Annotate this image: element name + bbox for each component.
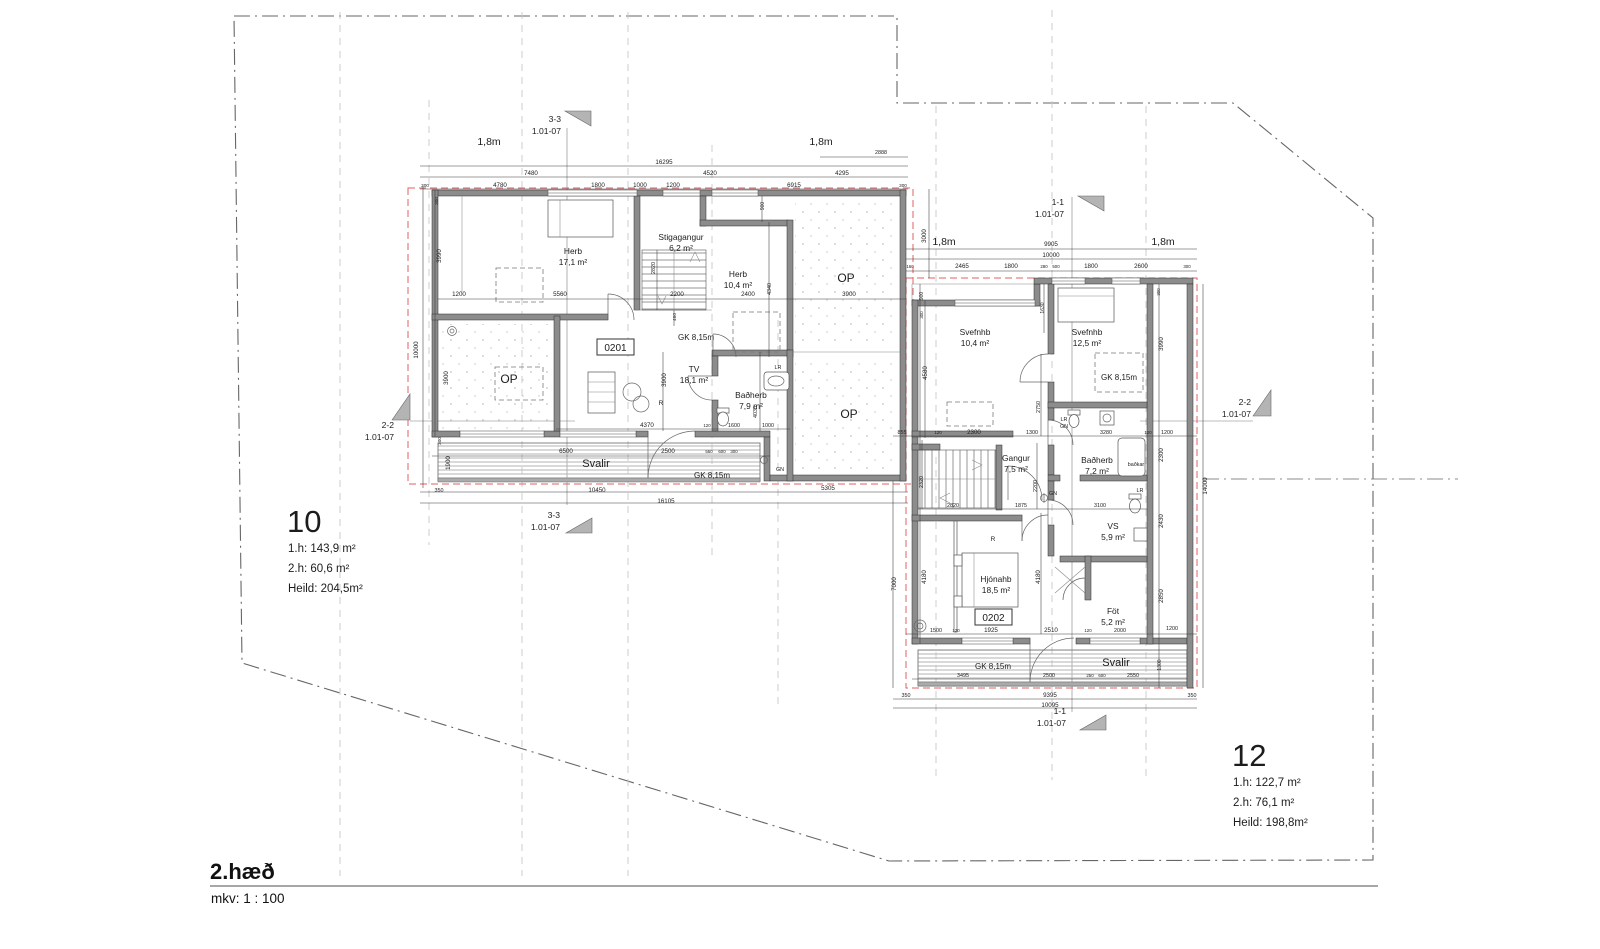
dim-label: 2430	[1158, 514, 1165, 528]
room-name-label: TV	[689, 364, 700, 374]
room-area-label: 6,2 m²	[669, 243, 693, 253]
dim-label: 350	[435, 488, 444, 494]
dim-label: 3000	[921, 229, 928, 243]
dim-label: 1300	[1026, 430, 1038, 436]
unit-area-line: 1.h: 143,9 m²	[288, 543, 356, 555]
dim-label: 2888	[875, 150, 887, 156]
annotation-label: LR	[1137, 488, 1144, 494]
room-area-label: 7,5 m²	[1004, 464, 1028, 474]
annotation-label: Svalir	[1102, 657, 1130, 669]
dim-label: 5560	[553, 291, 567, 298]
op-area	[440, 324, 552, 429]
dim-label: 300	[730, 449, 738, 454]
dim-label: 300	[1156, 288, 1161, 296]
annotation-label: GN	[1049, 491, 1057, 497]
room-area-label: 10,4 m²	[724, 280, 753, 290]
section-marker-ref: 1.01-07	[531, 522, 560, 532]
dim-label: 14000	[1202, 477, 1209, 495]
toilet-icon	[1130, 499, 1141, 513]
dim-label: 2500	[1043, 673, 1055, 679]
annotation-label: GK 8,15m	[694, 471, 730, 480]
dim-label: 350	[902, 693, 911, 699]
dim-label: 16295	[655, 159, 673, 166]
room-area-label: 18,5 m²	[982, 585, 1011, 595]
annotation-label: Svalir	[582, 458, 610, 470]
annotation-label: GN	[776, 467, 784, 473]
dim-label: 7480	[524, 170, 538, 177]
dim-label: 1600	[728, 423, 740, 429]
dim-label: 3900	[443, 371, 450, 385]
room-name-label: Baðherb	[735, 390, 767, 400]
dim-label: 5305	[821, 485, 835, 492]
dim-label: 300	[919, 311, 924, 319]
section-marker-label: 1-1	[1052, 197, 1065, 207]
room-name-label: Herb	[729, 269, 747, 279]
section-flag-icon	[1078, 196, 1104, 211]
section-marker-ref: 1.01-07	[1037, 718, 1066, 728]
room-area-label: 5,2 m²	[1101, 617, 1125, 627]
dim-label: 2750	[1036, 401, 1042, 413]
dim-label: 1875	[1015, 503, 1027, 509]
dim-label: 300	[421, 183, 429, 188]
dim-label: 10000	[413, 341, 420, 359]
dim-label: 460	[672, 313, 678, 321]
section-flag-icon	[1080, 715, 1106, 730]
room-area-label: 17,1 m²	[559, 257, 588, 267]
toilet-icon	[1129, 494, 1141, 499]
annotation-label: R	[991, 536, 996, 543]
annotation-label: GK 8,15m	[975, 662, 1011, 671]
section-flag-icon	[566, 518, 592, 533]
room-name-label: Föt	[1107, 606, 1120, 616]
toilet-icon	[718, 412, 729, 426]
balcony-svalir-12	[918, 650, 1187, 686]
dim-label: 2400	[741, 291, 755, 298]
room-name-label: Svefnhb	[1072, 327, 1103, 337]
room-area-label: 12,5 m²	[1073, 338, 1102, 348]
dim-label: 4580	[922, 366, 929, 380]
dim-label: 10000	[1042, 252, 1060, 259]
section-flag-icon	[1253, 390, 1271, 416]
dim-label: 280	[1040, 264, 1048, 269]
dim-label: 2510	[1044, 627, 1058, 634]
room-name-label: Svefnhb	[960, 327, 991, 337]
stair-unit-12	[918, 450, 996, 508]
annotation-label: LR	[775, 365, 782, 371]
dim-label: 16105	[657, 498, 675, 505]
room-name-label: Stigagangur	[658, 232, 703, 242]
section-marker-label: 1-1	[1054, 706, 1067, 716]
dim-label: 1200	[452, 291, 466, 298]
dim-label: 3990	[1158, 337, 1165, 351]
apartment-id: 0201	[604, 343, 627, 354]
annotation-label: 1,8m	[1151, 236, 1175, 248]
dim-label: 6500	[559, 448, 573, 455]
section-marker-ref: 1.01-07	[365, 432, 394, 442]
dim-label: 1900	[445, 456, 452, 470]
dim-label: 10450	[588, 487, 606, 494]
dim-label: 600	[1098, 673, 1106, 678]
scale-label: mkv: 1 : 100	[211, 891, 285, 906]
section-marker-ref: 1.01-07	[532, 126, 561, 136]
dim-label: 4180	[921, 570, 928, 584]
dim-label: 120	[703, 423, 711, 428]
dim-label: 550	[705, 449, 713, 454]
dim-label: 3900	[661, 373, 668, 387]
unit-number: 10	[287, 504, 321, 539]
dim-label: 500	[1052, 264, 1060, 269]
room-area-label: 7,9 m²	[739, 401, 763, 411]
section-marker-ref: 1.01-07	[1035, 209, 1064, 219]
dim-label: 4340	[767, 283, 773, 295]
bathtub-icon	[1118, 438, 1145, 476]
floor-title: 2.hæð	[210, 859, 275, 884]
dim-label: 1500	[930, 628, 942, 634]
dim-label: 2300	[967, 429, 981, 436]
annotation-label: GN	[1060, 424, 1068, 430]
sink-icon	[1134, 528, 1147, 541]
section-flag-icon	[565, 111, 591, 126]
room-area-label: 18,1 m²	[680, 375, 709, 385]
sink-icon	[1100, 411, 1114, 425]
annotation-label: 1,8m	[477, 136, 501, 148]
section-marker-ref: 1.01-07	[1222, 409, 1251, 419]
room-name-label: Herb	[564, 246, 582, 256]
dim-label: 600	[718, 449, 726, 454]
dim-label: 2465	[955, 263, 969, 270]
dim-label: 2200	[1033, 480, 1039, 492]
stair-unit-10	[642, 250, 706, 310]
room-area-label: 5,9 m²	[1101, 532, 1125, 542]
annotation-label: baðkar	[1128, 461, 1145, 468]
dim-label: 4780	[493, 182, 507, 189]
dim-label: 120	[934, 430, 942, 435]
dim-label: 2200	[670, 291, 684, 298]
annotation-label: 1,8m	[809, 136, 833, 148]
unit-area-line: 1.h: 122,7 m²	[1233, 777, 1301, 789]
dim-label: 9905	[1044, 241, 1058, 248]
dim-label: 1000	[633, 182, 647, 189]
room-name-label: Hjónahb	[980, 574, 1012, 584]
dim-label: 3900	[842, 291, 856, 298]
dim-label: 300	[437, 437, 442, 445]
dim-label: 1630	[1040, 302, 1046, 313]
room-name-label: Baðherb	[1081, 455, 1113, 465]
annotation-label: 1,8m	[932, 236, 956, 248]
apartment-id: 0202	[982, 613, 1005, 624]
dim-label: 7000	[891, 577, 898, 591]
dim-label: 250	[1086, 673, 1094, 678]
annotation-label: OP	[500, 372, 517, 386]
dim-label: 2500	[661, 448, 675, 455]
dim-label: 2300	[1158, 448, 1165, 462]
dim-label: 3990	[436, 249, 443, 263]
dim-label: 300	[899, 183, 907, 188]
dim-label: 1925	[984, 627, 998, 634]
dim-label: 3280	[1100, 430, 1112, 436]
dim-label: 2820	[651, 262, 657, 274]
dim-label: 900	[760, 202, 766, 211]
dim-label: 350	[1188, 693, 1197, 699]
dim-label: 1200	[1161, 430, 1173, 436]
section-marker-label: 2-2	[382, 420, 395, 430]
dim-label: 3100	[1094, 503, 1106, 509]
toilet-icon	[1069, 415, 1079, 428]
unit-area-line: 2.h: 76,1 m²	[1233, 797, 1295, 809]
section-marker-label: 2-2	[1239, 397, 1252, 407]
annotation-label: OP	[840, 407, 857, 421]
dim-label: 4520	[703, 170, 717, 177]
annotation-label: GK 8,15m	[678, 333, 714, 342]
dim-label: 2600	[1134, 263, 1148, 270]
section-marker-label: 3-3	[548, 510, 561, 520]
dim-label: 120	[1084, 628, 1092, 633]
annotation-label: OP	[837, 271, 854, 285]
dim-label: 9395	[1043, 692, 1057, 699]
dim-label: 1800	[1084, 263, 1098, 270]
dim-label: 1800	[591, 182, 605, 189]
dim-label: 1800	[1004, 263, 1018, 270]
dim-label: 6915	[787, 182, 801, 189]
room-name-label: VS	[1107, 521, 1119, 531]
room-name-label: Gangur	[1002, 453, 1030, 463]
dim-label: 900	[919, 292, 925, 301]
dim-label: 1200	[1166, 626, 1178, 632]
dim-label: 300	[434, 197, 439, 205]
unit-area-line: Heild: 198,8m²	[1233, 817, 1308, 829]
section-flag-icon	[392, 394, 410, 420]
dim-label: 855	[898, 430, 907, 436]
title-block: 2.hæð mkv: 1 : 100	[210, 859, 1378, 906]
dim-label: 2000	[1114, 628, 1126, 634]
dim-label: 300	[1183, 264, 1191, 269]
annotation-label: GK 8,15m	[1101, 373, 1137, 382]
dim-label: 4180	[1035, 570, 1042, 584]
dim-label: 2550	[1127, 673, 1139, 679]
annotation-label: R	[659, 400, 664, 407]
room-area-label: 10,4 m²	[961, 338, 990, 348]
dim-label: 2850	[1158, 589, 1165, 603]
dim-label: 2820	[947, 503, 959, 509]
dim-label: 160	[906, 264, 914, 269]
floor-plan-sheet: 1629574804520429530047801800100012006915…	[0, 0, 1600, 949]
dim-label: 1300	[1157, 659, 1163, 670]
dim-label: 1000	[762, 423, 774, 429]
dim-label: 4370	[640, 422, 654, 429]
floor-plan-drawing: 1629574804520429530047801800100012006915…	[0, 0, 1600, 949]
annotation-label: LR	[1061, 417, 1068, 423]
dim-label: 4295	[835, 170, 849, 177]
dim-label: 2320	[919, 476, 925, 488]
unit-area-line: 2.h: 60,6 m²	[288, 563, 350, 575]
section-marker-label: 3-3	[549, 114, 562, 124]
dim-label: 120	[952, 628, 960, 633]
dim-label: 120	[1144, 430, 1152, 435]
room-area-label: 7,2 m²	[1085, 466, 1109, 476]
dim-label: 1200	[666, 182, 680, 189]
unit-number: 12	[1232, 738, 1266, 773]
unit-area-line: Heild: 204,5m²	[288, 583, 363, 595]
dim-label: 3495	[957, 673, 969, 679]
